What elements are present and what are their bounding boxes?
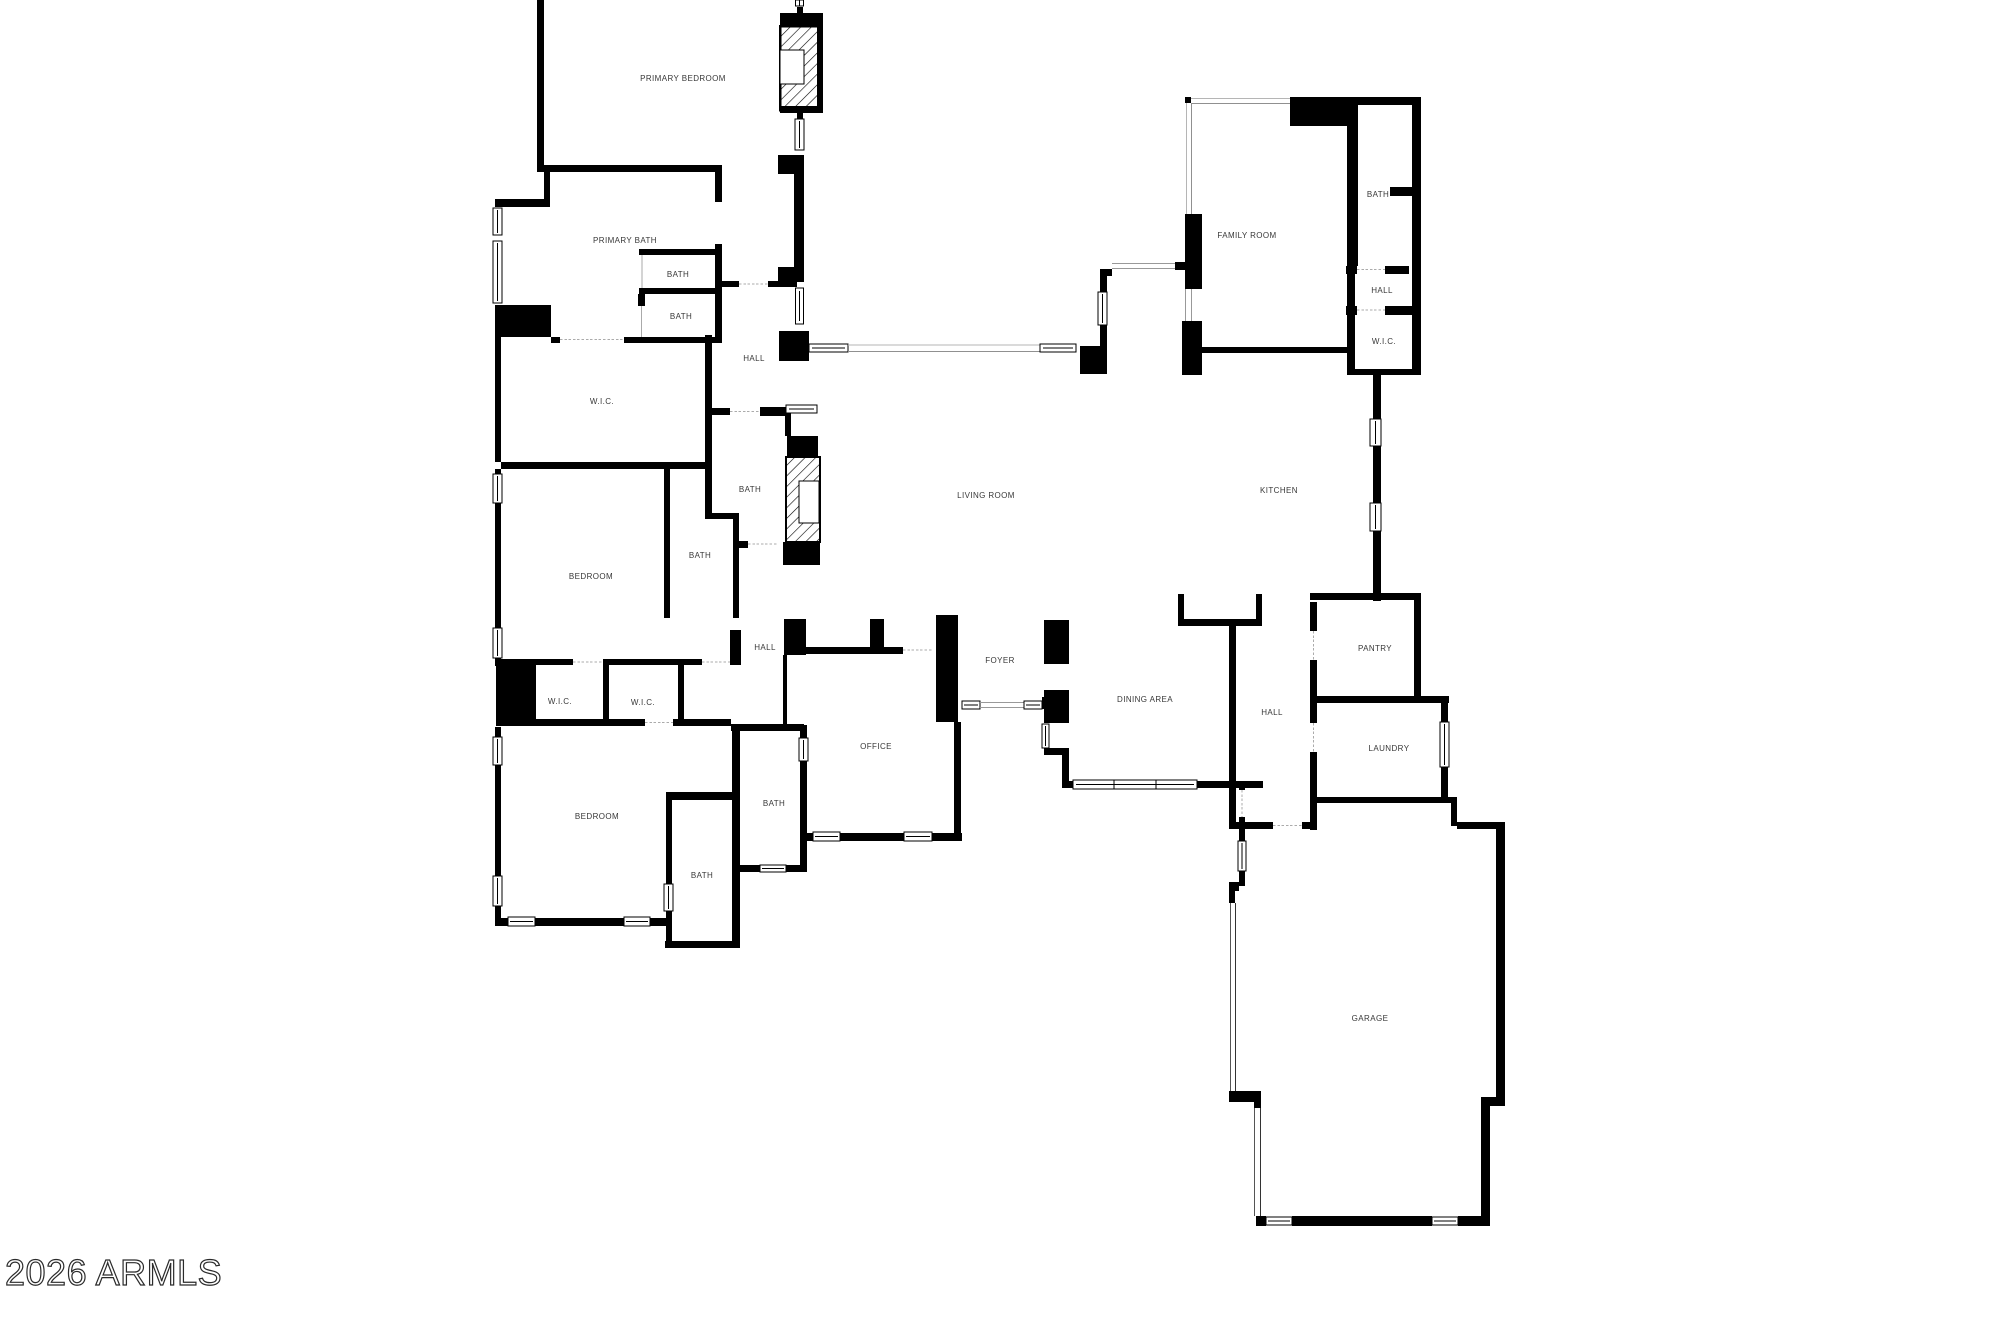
svg-text:BATH: BATH (739, 485, 761, 494)
svg-text:BATH: BATH (667, 270, 689, 279)
svg-text:HALL: HALL (1261, 708, 1283, 717)
svg-text:BEDROOM: BEDROOM (569, 572, 613, 581)
svg-text:PRIMARY BEDROOM: PRIMARY BEDROOM (640, 74, 726, 83)
svg-text:PANTRY: PANTRY (1358, 644, 1392, 653)
svg-text:KITCHEN: KITCHEN (1260, 486, 1298, 495)
svg-text:LAUNDRY: LAUNDRY (1369, 744, 1410, 753)
svg-text:HALL: HALL (754, 643, 776, 652)
svg-text:FAMILY ROOM: FAMILY ROOM (1217, 231, 1276, 240)
svg-text:BEDROOM: BEDROOM (575, 812, 619, 821)
svg-text:W.I.C.: W.I.C. (590, 397, 614, 406)
svg-text:BATH: BATH (670, 312, 692, 321)
svg-text:OFFICE: OFFICE (860, 742, 892, 751)
svg-text:HALL: HALL (743, 354, 765, 363)
svg-text:W.I.C.: W.I.C. (1372, 337, 1396, 346)
svg-text:GARAGE: GARAGE (1352, 1014, 1389, 1023)
svg-text:FOYER: FOYER (985, 656, 1015, 665)
svg-text:BATH: BATH (763, 799, 785, 808)
svg-text:2026 ARMLS: 2026 ARMLS (5, 1252, 222, 1293)
svg-text:W.I.C.: W.I.C. (548, 697, 572, 706)
svg-text:DINING AREA: DINING AREA (1117, 695, 1173, 704)
svg-text:PRIMARY BATH: PRIMARY BATH (593, 236, 657, 245)
svg-text:W.I.C.: W.I.C. (631, 698, 655, 707)
svg-text:HALL: HALL (1371, 286, 1393, 295)
svg-text:BATH: BATH (691, 871, 713, 880)
svg-text:BATH: BATH (1367, 190, 1389, 199)
svg-text:BATH: BATH (689, 551, 711, 560)
svg-text:LIVING ROOM: LIVING ROOM (957, 491, 1015, 500)
